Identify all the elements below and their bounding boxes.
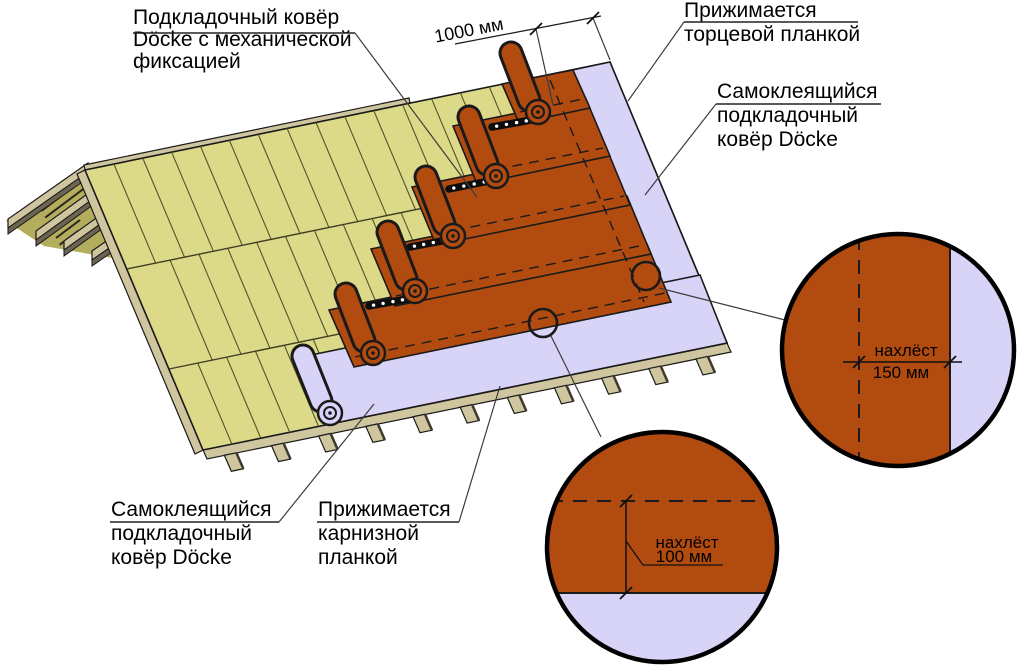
nail-dot: [422, 243, 425, 246]
label-line: Самоклеящийся: [111, 498, 272, 521]
label-line: ковёр Döcke: [111, 546, 232, 569]
leader-pressed-end-strip: [628, 22, 684, 101]
label-line: Прижимается: [684, 0, 817, 22]
roofing-diagram-page: 1000 мм Подкладочный ковёр Döcke с механ…: [0, 0, 1024, 667]
detail-circle-150: нахлёст 150 мм: [780, 232, 1024, 472]
nail-dot: [432, 241, 435, 244]
nail-dot: [391, 300, 394, 303]
label-line: подкладочный: [111, 522, 252, 545]
underlayment-installation-diagram: 1000 мм Подкладочный ковёр Döcke с механ…: [0, 0, 1024, 667]
nail-dot: [413, 244, 416, 247]
nail-dot: [452, 186, 455, 189]
extension-line: [593, 18, 610, 60]
nail-dot: [381, 302, 384, 305]
label-underlayment-mechanical: Подкладочный ковёр Döcke с механической …: [133, 6, 355, 73]
nail-dot: [401, 298, 404, 301]
nail-dot: [505, 123, 508, 126]
nail-dot: [462, 184, 465, 187]
label-pressed-eaves-strip: Прижимается карнизной планкой: [317, 498, 459, 569]
label-selfadhesive-gable: Самоклеящийся подкладочный ковёр Döcke: [716, 80, 881, 151]
overlap-100-value: 100 мм: [656, 547, 712, 566]
label-selfadhesive-eaves: Самоклеящийся подкладочный ковёр Döcke: [110, 498, 279, 569]
label-line: фиксацией: [133, 50, 241, 73]
label-line: торцевой планкой: [684, 23, 860, 46]
label-line: Döcke с механической: [133, 28, 352, 51]
label-line: Самоклеящийся: [717, 80, 878, 103]
label-line: Подкладочный ковёр: [133, 6, 339, 29]
label-pressed-end-strip: Прижимается торцевой планкой: [684, 0, 860, 46]
label-line: ковёр Döcke: [717, 128, 838, 151]
label-line: планкой: [318, 546, 398, 569]
label-line: Прижимается: [318, 498, 451, 521]
leader-selfadhesive-gable: [645, 104, 716, 195]
overlap-150-value: 150 мм: [873, 363, 929, 382]
label-line: подкладочный: [717, 104, 858, 127]
nail-dot: [473, 182, 476, 185]
label-line: карнизной: [318, 522, 419, 545]
overlap-150-caption: нахлёст: [874, 341, 937, 360]
nail-dot: [372, 303, 375, 306]
nail-dot: [495, 124, 498, 127]
detail-circle-100: нахлёст 100 мм: [545, 430, 781, 667]
nail-dot: [515, 121, 518, 124]
